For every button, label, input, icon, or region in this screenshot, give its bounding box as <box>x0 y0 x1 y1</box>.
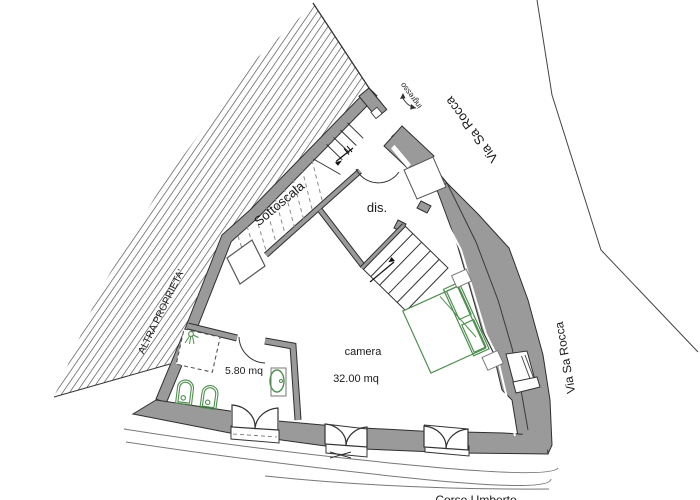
svg-text:camera: camera <box>345 346 383 358</box>
svg-text:Via Sa Rocca: Via Sa Rocca <box>441 93 501 165</box>
svg-text:5.80 mq: 5.80 mq <box>225 365 263 377</box>
svg-text:Corso Umberto: Corso Umberto <box>435 493 517 500</box>
svg-text:32.00 mq: 32.00 mq <box>333 373 379 385</box>
svg-text:Via Sa Rocca: Via Sa Rocca <box>552 320 578 394</box>
svg-text:dis.: dis. <box>367 200 387 215</box>
